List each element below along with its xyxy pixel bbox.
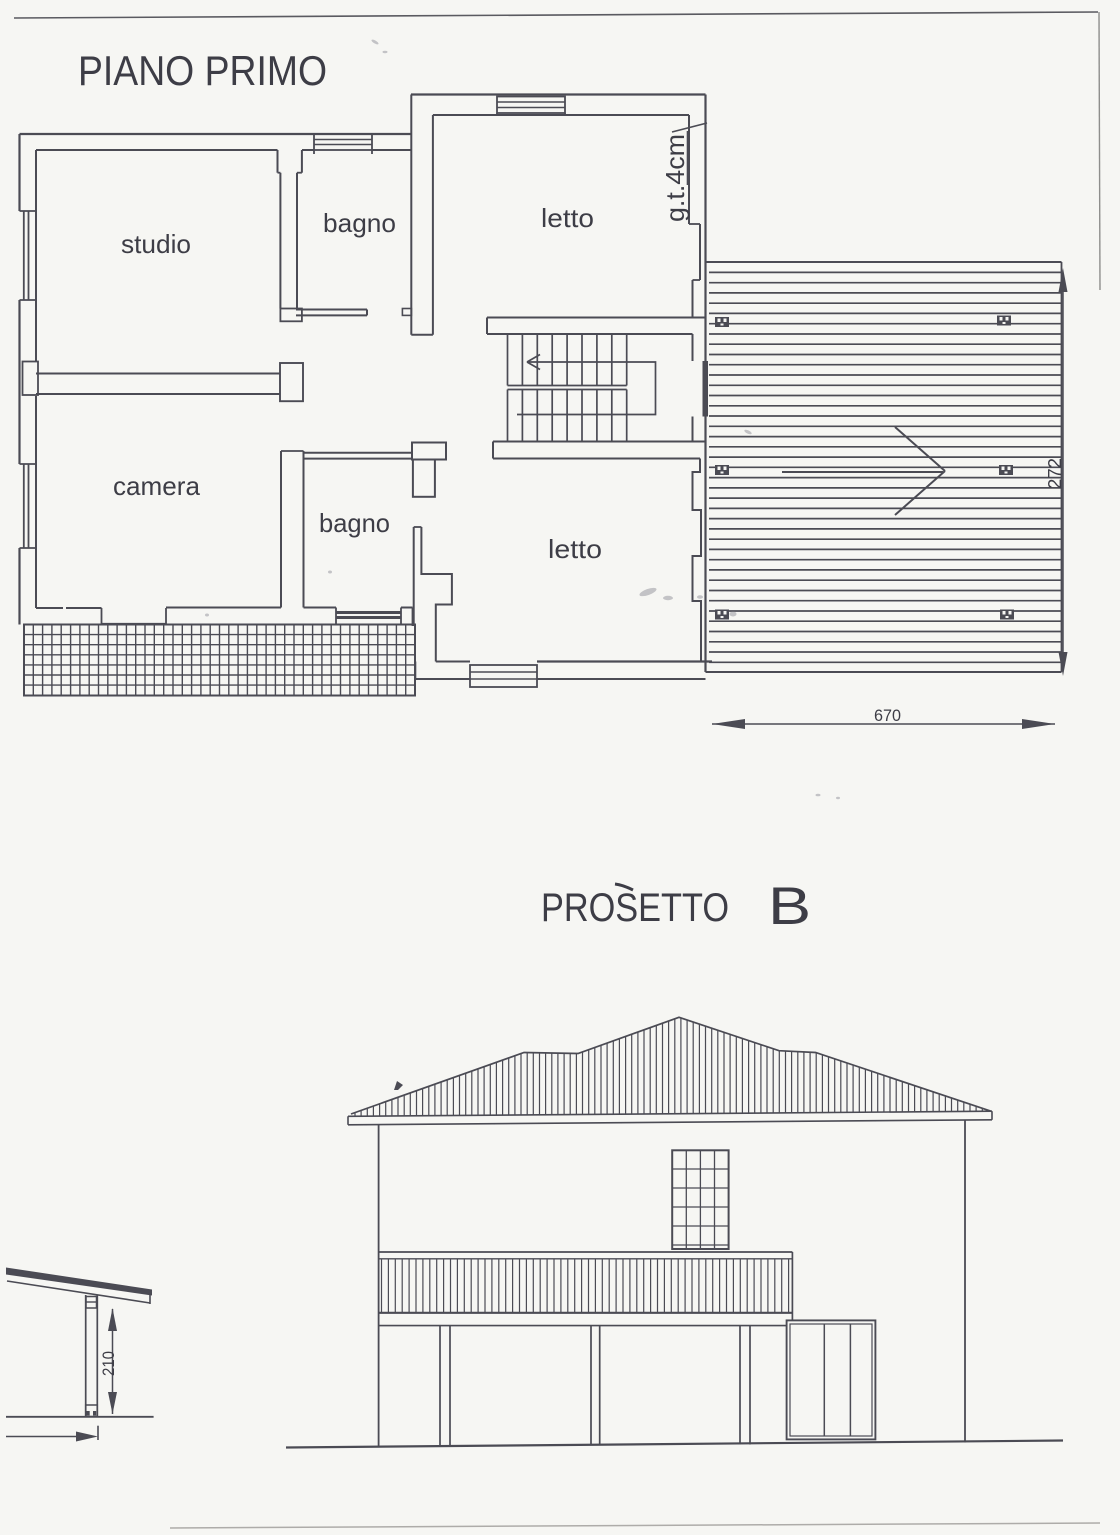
svg-text:letto: letto — [541, 203, 594, 233]
svg-text:letto: letto — [548, 534, 602, 564]
svg-text:B: B — [768, 876, 811, 936]
svg-text:272: 272 — [1045, 458, 1065, 489]
svg-text:670: 670 — [874, 706, 901, 725]
svg-text:camera: camera — [113, 471, 201, 501]
svg-text:bagno: bagno — [323, 208, 396, 238]
svg-text:210: 210 — [99, 1351, 118, 1376]
svg-text:PROSETTO: PROSETTO — [541, 886, 729, 930]
svg-text:studio: studio — [121, 229, 191, 259]
svg-text:PIANO PRIMO: PIANO PRIMO — [78, 47, 327, 94]
svg-text:g.t.4cm: g.t.4cm — [660, 134, 690, 222]
svg-text:bagno: bagno — [319, 508, 390, 538]
